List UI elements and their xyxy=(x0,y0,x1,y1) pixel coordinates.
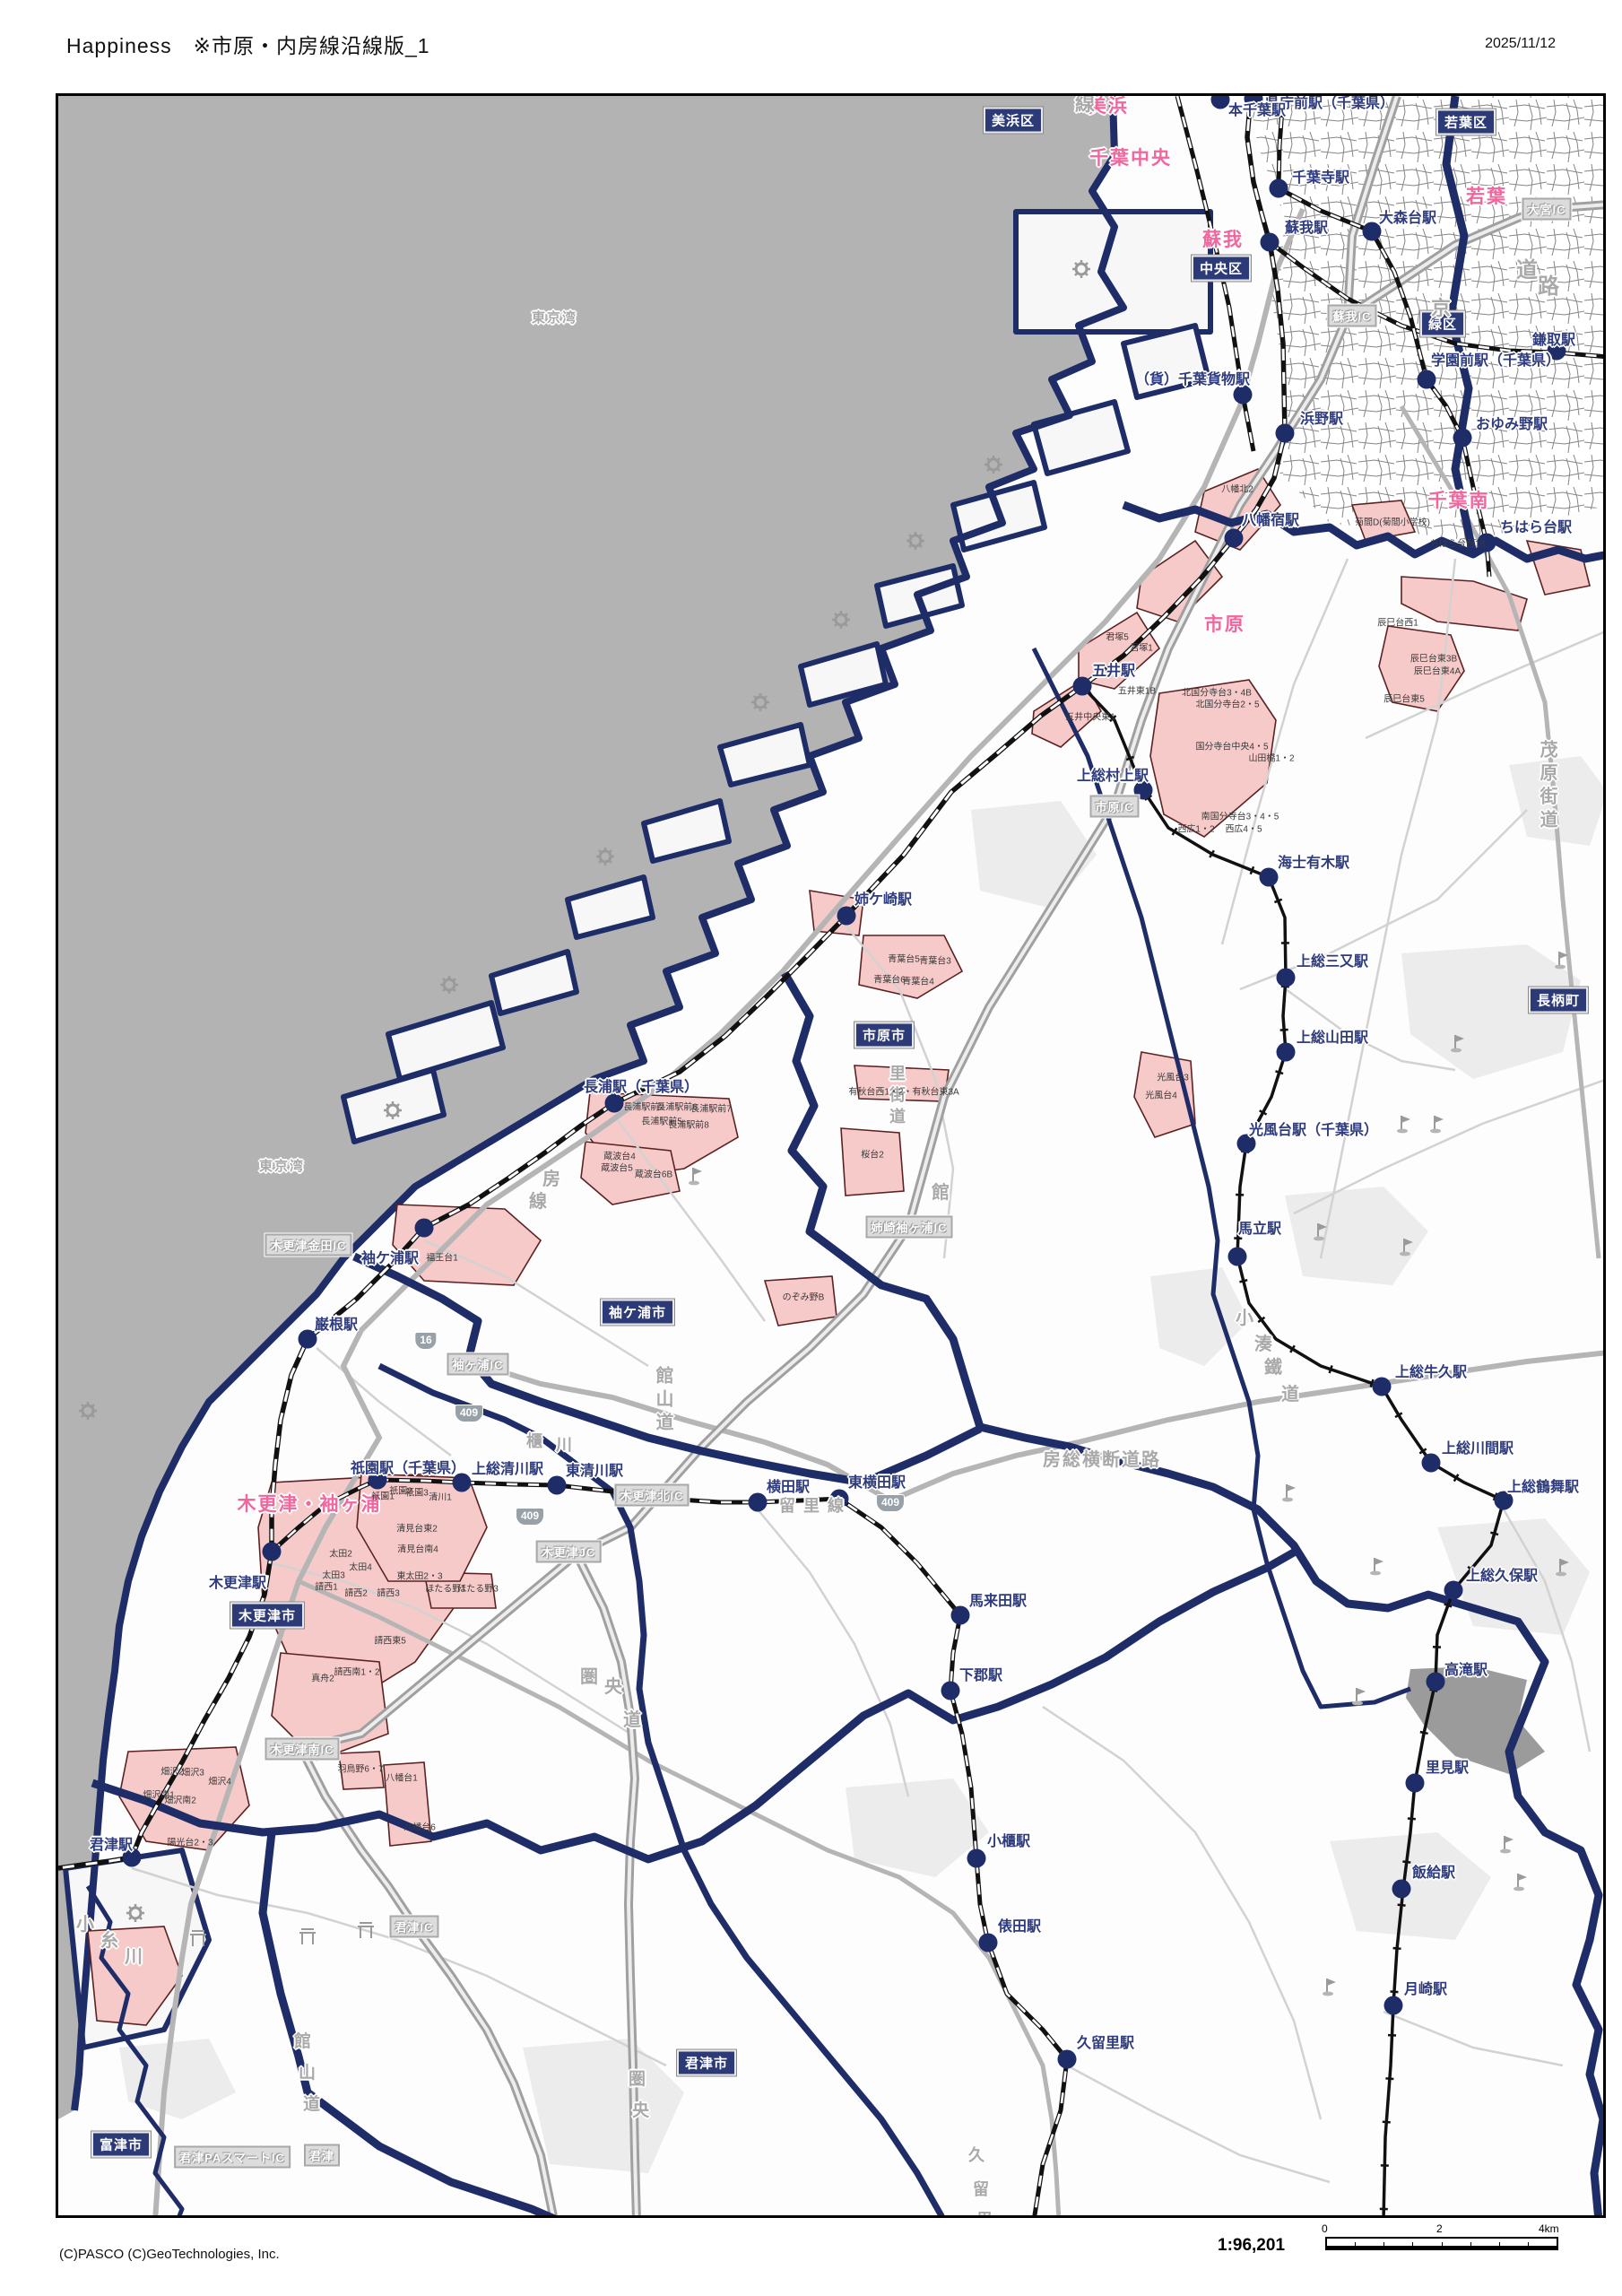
station-label: 上総川間駅 xyxy=(1442,1436,1514,1457)
district-label: 五井中央東1 xyxy=(1065,709,1115,723)
map-label-layer: 県庁前駅（千葉県）本千葉駅千葉寺駅大森台駅蘇我駅鎌取駅学園前駅（千葉県）おゆみ野… xyxy=(58,96,1603,2215)
geo-name-label: 道 xyxy=(1281,1379,1301,1405)
station-label: 上総三又駅 xyxy=(1297,949,1368,970)
district-label: 辰巳台東5 xyxy=(1383,691,1425,705)
station-label: 祇園駅（千葉県） xyxy=(351,1456,465,1477)
district-label: 陽光台2・3 xyxy=(167,1835,213,1848)
map-scale: 1:96,201 xyxy=(1218,2236,1285,2256)
area-name-label: 木更津・袖ヶ浦 xyxy=(238,1490,382,1517)
route-number-shield: 409 xyxy=(455,1405,483,1422)
district-label: 福王台1 xyxy=(426,1250,458,1264)
route-number-shield: 409 xyxy=(876,1494,905,1512)
station-dot xyxy=(1261,233,1279,252)
district-label: 真舟2 xyxy=(311,1671,334,1684)
area-name-label: 千葉中央 xyxy=(1089,143,1172,170)
geo-name-label: 館山道 xyxy=(650,1366,676,1436)
station-dot xyxy=(1277,1043,1296,1062)
interchange-box: 袖ヶ浦IC xyxy=(447,1353,508,1376)
station-label: 俵田駅 xyxy=(998,1914,1041,1935)
geo-name-label: 留 xyxy=(973,2177,991,2200)
station-label: 上総山田駅 xyxy=(1297,1025,1368,1047)
station-dot xyxy=(1406,1774,1425,1793)
station-dot xyxy=(605,1094,624,1113)
station-label: 蘇我駅 xyxy=(1285,215,1328,237)
district-label: ほたる野3 xyxy=(457,1581,499,1595)
district-label: のぞみ野B xyxy=(783,1290,825,1303)
station-dot xyxy=(1276,424,1295,443)
station-dot xyxy=(1373,1378,1392,1396)
station-label: 本千葉駅 xyxy=(1228,98,1286,119)
geo-name-label: 山 xyxy=(299,2059,317,2083)
station-dot xyxy=(967,1849,986,1868)
station-dot xyxy=(1058,2050,1077,2069)
district-label: 清見台南4 xyxy=(397,1542,438,1555)
district-label: 辰巳台東3B xyxy=(1410,651,1457,665)
station-label: 光風台駅（千葉県） xyxy=(1249,1118,1378,1139)
interchange-box: 市原IC xyxy=(1089,796,1139,818)
district-label: 長浦駅前7 xyxy=(690,1101,732,1115)
copyright: (C)PASCO (C)GeoTechnologies, Inc. xyxy=(59,2247,280,2262)
district-label: 青葉台5 xyxy=(888,952,920,965)
geo-name-label: 東京湾 xyxy=(259,1156,305,1175)
station-label: 月崎駅 xyxy=(1404,1977,1447,1998)
district-label: 清川1 xyxy=(429,1490,452,1503)
station-label: 袖ケ浦駅 xyxy=(361,1246,419,1267)
geo-name-label: 東京湾 xyxy=(532,308,577,326)
district-label: 蔵波台5 xyxy=(601,1161,633,1174)
station-label: 学園前駅（千葉県） xyxy=(1431,348,1560,370)
district-label: 清見台東2 xyxy=(396,1521,438,1535)
district-label: 青葉台4 xyxy=(902,974,934,987)
station-label: 久留里駅 xyxy=(1077,2031,1134,2052)
district-label: 君塚5 xyxy=(1106,630,1129,643)
geo-name-label: 湊 xyxy=(1254,1329,1274,1355)
station-label: ちはら台駅 xyxy=(1500,515,1572,536)
station-label: 下郡駅 xyxy=(959,1663,1002,1684)
geo-name-label: 櫃 xyxy=(526,1429,544,1452)
district-label: 君塚1 xyxy=(1130,640,1153,654)
map-canvas: 県庁前駅（千葉県）本千葉駅千葉寺駅大森台駅蘇我駅鎌取駅学園前駅（千葉県）おゆみ野… xyxy=(56,93,1606,2218)
station-label: 姉ケ崎駅 xyxy=(854,887,912,909)
station-dot xyxy=(1270,179,1288,198)
district-label: 東太田2・3 xyxy=(396,1569,442,1582)
district-label: 菊間D(菊間小学校) xyxy=(1355,515,1430,528)
station-dot xyxy=(1392,1880,1411,1899)
district-label: 有秋台西1・2・有秋台東3A xyxy=(848,1084,958,1098)
station-label: 巌根駅 xyxy=(315,1312,358,1334)
station-label: 大森台駅 xyxy=(1379,205,1436,227)
area-name-label: 蘇我 xyxy=(1202,225,1244,252)
district-label: 請西南1・2 xyxy=(334,1665,379,1678)
station-label: 馬来田駅 xyxy=(969,1588,1027,1610)
geo-name-label: 糸 xyxy=(100,1926,120,1952)
scalebar-zero: 0 xyxy=(1322,2222,1328,2235)
station-dot xyxy=(1444,1581,1463,1600)
district-label: 桜台2 xyxy=(861,1147,884,1161)
district-label: 青葉台6 xyxy=(873,972,906,986)
ward-box: 袖ケ浦市 xyxy=(601,1300,674,1326)
ward-box: 木更津市 xyxy=(230,1603,304,1629)
station-label: 海士有木駅 xyxy=(1278,850,1349,872)
scalebar xyxy=(1325,2237,1558,2250)
station-dot xyxy=(1073,677,1092,696)
district-label: 長浦駅前8 xyxy=(668,1118,709,1131)
district-label: 羽鳥野6・7 xyxy=(337,1761,383,1775)
geo-name-label: 川 xyxy=(556,1432,574,1456)
district-label: 畑沢2 xyxy=(160,1764,184,1778)
district-label: 請西2 xyxy=(344,1586,368,1599)
print-date: 2025/11/12 xyxy=(1485,36,1556,52)
district-label: 山田橋1・2 xyxy=(1248,751,1294,764)
station-label: 鎌取駅 xyxy=(1532,327,1575,349)
ward-box: 市原市 xyxy=(854,1022,914,1048)
station-label: 上総村上駅 xyxy=(1077,763,1149,785)
district-label: 南国分寺台3・4・5 xyxy=(1201,809,1279,822)
page-title: Happiness ※市原・内房線沿線版_1 xyxy=(66,29,430,59)
geo-name-label: 圏 xyxy=(629,2066,647,2090)
geo-name-label: 路 xyxy=(1538,268,1561,300)
station-label: 飯給駅 xyxy=(1412,1860,1455,1882)
station-label: 東横田駅 xyxy=(848,1470,906,1492)
geo-name-label: 道 xyxy=(1516,252,1540,283)
station-dot xyxy=(1418,370,1436,389)
station-label: 小櫃駅 xyxy=(987,1829,1030,1850)
district-label: 辰巳台西1 xyxy=(1377,615,1418,629)
interchange-box: 君津PAスマートIC xyxy=(174,2146,291,2169)
station-dot xyxy=(951,1606,970,1625)
ward-box: 中央区 xyxy=(1192,256,1251,282)
ward-box: 富津市 xyxy=(91,2132,151,2158)
station-dot xyxy=(263,1543,282,1561)
station-label: 上総牛久駅 xyxy=(1395,1360,1467,1381)
geo-name-label: 小 xyxy=(1236,1303,1255,1329)
interchange-box: 木更津南IC xyxy=(265,1738,339,1761)
station-label: 浜野駅 xyxy=(1300,406,1343,428)
station-dot xyxy=(1260,868,1279,887)
district-label: 祇園3 xyxy=(405,1485,429,1499)
station-dot xyxy=(1427,1673,1445,1692)
station-label: おゆみ野駅 xyxy=(1476,412,1548,433)
ward-box: 美浜区 xyxy=(984,108,1043,134)
district-label: 八幡台1 xyxy=(386,1770,418,1784)
station-label: 馬立駅 xyxy=(1238,1216,1281,1238)
district-label: 畑沢3 xyxy=(181,1765,204,1779)
geo-name-label: 道 xyxy=(623,1705,643,1731)
station-dot xyxy=(1384,1996,1403,2015)
area-name-label: 若葉 xyxy=(1466,182,1507,209)
ward-box: 若葉区 xyxy=(1436,109,1496,135)
district-label: 西広4・5 xyxy=(1225,822,1262,835)
interchange-box: 姉崎袖ヶ浦IC xyxy=(865,1216,952,1239)
district-label: 太田4 xyxy=(349,1560,372,1573)
station-dot xyxy=(1422,1454,1441,1473)
station-dot xyxy=(548,1476,567,1495)
station-label: （貨）千葉貨物駅 xyxy=(1135,367,1250,388)
station-dot xyxy=(979,1934,998,1952)
district-label: 八幡台6 xyxy=(403,1820,436,1833)
station-dot xyxy=(1228,1248,1247,1266)
station-dot xyxy=(749,1493,768,1512)
district-label: 青葉台3 xyxy=(919,953,951,967)
geo-name-label: 圏 xyxy=(580,1662,600,1688)
station-label: 五井駅 xyxy=(1092,658,1135,680)
station-dot xyxy=(1225,529,1244,548)
district-label: 請西1 xyxy=(315,1579,338,1593)
interchange-box: 木更津北IC xyxy=(614,1484,689,1507)
station-dot xyxy=(837,907,856,926)
station-label: 千葉寺駅 xyxy=(1292,165,1349,187)
station-label: 八幡宿駅 xyxy=(1242,508,1299,529)
station-dot xyxy=(1211,93,1230,109)
geo-name-label: 京 xyxy=(1431,292,1453,321)
station-label: 高滝駅 xyxy=(1444,1657,1488,1679)
geo-name-label: 館 xyxy=(932,1178,951,1204)
district-label: 光風台4 xyxy=(1145,1088,1177,1101)
district-label: 五井東1B xyxy=(1118,683,1156,697)
district-label: 北国分寺台2・5 xyxy=(1195,697,1259,710)
station-label: 木更津駅 xyxy=(209,1570,266,1592)
district-label: 太田2 xyxy=(329,1546,352,1560)
station-label: 上総久保駅 xyxy=(1466,1563,1538,1585)
station-label: 上総清川駅 xyxy=(472,1457,543,1478)
district-label: 辰巳台東4A xyxy=(1414,664,1461,677)
station-label: 里見駅 xyxy=(1426,1755,1469,1777)
district-label: 西広1・2 xyxy=(1177,822,1214,835)
geo-name-label: 線 xyxy=(1075,93,1097,117)
scalebar-two: 2 xyxy=(1436,2222,1443,2235)
district-label: 畑沢4 xyxy=(208,1774,231,1787)
geo-name-label: 館 xyxy=(294,2028,313,2052)
district-label: 畑沢南2 xyxy=(164,1793,196,1806)
station-dot xyxy=(1277,969,1296,987)
geo-name-label: 鐵 xyxy=(1264,1352,1284,1378)
station-label: 君津駅 xyxy=(90,1832,133,1854)
geo-name-label: 線 xyxy=(529,1187,549,1213)
interchange-box: 木更津金田IC xyxy=(265,1234,351,1257)
station-label: 上総鶴舞駅 xyxy=(1507,1474,1579,1496)
station-dot xyxy=(453,1474,472,1492)
station-label: 長浦駅（千葉県） xyxy=(584,1074,698,1096)
route-number-shield: 409 xyxy=(516,1508,544,1526)
map-sheet-page: Happiness ※市原・内房線沿線版_1 2025/11/12 xyxy=(0,0,1622,2296)
scalebar-four-km: 4km xyxy=(1539,2222,1559,2235)
interchange-box: 蘇我IC xyxy=(1327,305,1376,327)
geo-name-label: 留 里 線 xyxy=(779,1493,846,1517)
district-label: ちはら台西1B xyxy=(1430,536,1486,550)
area-name-label: 千葉南 xyxy=(1428,486,1490,513)
ward-box: 君津市 xyxy=(677,2050,736,2076)
route-number-shield: 16 xyxy=(414,1332,437,1350)
geo-name-label: 央 xyxy=(632,2097,651,2121)
geo-name-label: 茂原街道 xyxy=(1534,740,1560,833)
station-dot xyxy=(1453,429,1472,448)
station-dot xyxy=(941,1682,960,1700)
district-label: 請西東5 xyxy=(374,1633,406,1647)
interchange-box: 君津 xyxy=(304,2144,340,2167)
geo-name-label: 央 xyxy=(604,1672,624,1698)
geo-name-label: 川 xyxy=(125,1942,144,1968)
ward-box: 長柄町 xyxy=(1529,987,1588,1013)
district-label: 蔵波台6B xyxy=(635,1167,672,1180)
interchange-box: 木更津JC xyxy=(536,1541,602,1563)
district-label: 光風台3 xyxy=(1157,1070,1189,1083)
district-label: 請西3 xyxy=(377,1586,400,1599)
station-dot xyxy=(415,1219,434,1238)
area-name-label: 市原 xyxy=(1204,610,1245,637)
geo-name-label: 里 xyxy=(976,2207,994,2218)
station-label: 東清川駅 xyxy=(566,1458,623,1480)
geo-name-label: 久 xyxy=(968,2143,986,2166)
geo-name-label: 房総横断道路 xyxy=(1043,1445,1161,1471)
interchange-box: 君津IC xyxy=(389,1916,438,1938)
geo-name-label: 道 xyxy=(303,2091,322,2115)
geo-name-label: 小 xyxy=(76,1909,96,1935)
interchange-box: 大宮IC xyxy=(1522,198,1571,221)
district-label: 八幡北2 xyxy=(1221,482,1253,495)
